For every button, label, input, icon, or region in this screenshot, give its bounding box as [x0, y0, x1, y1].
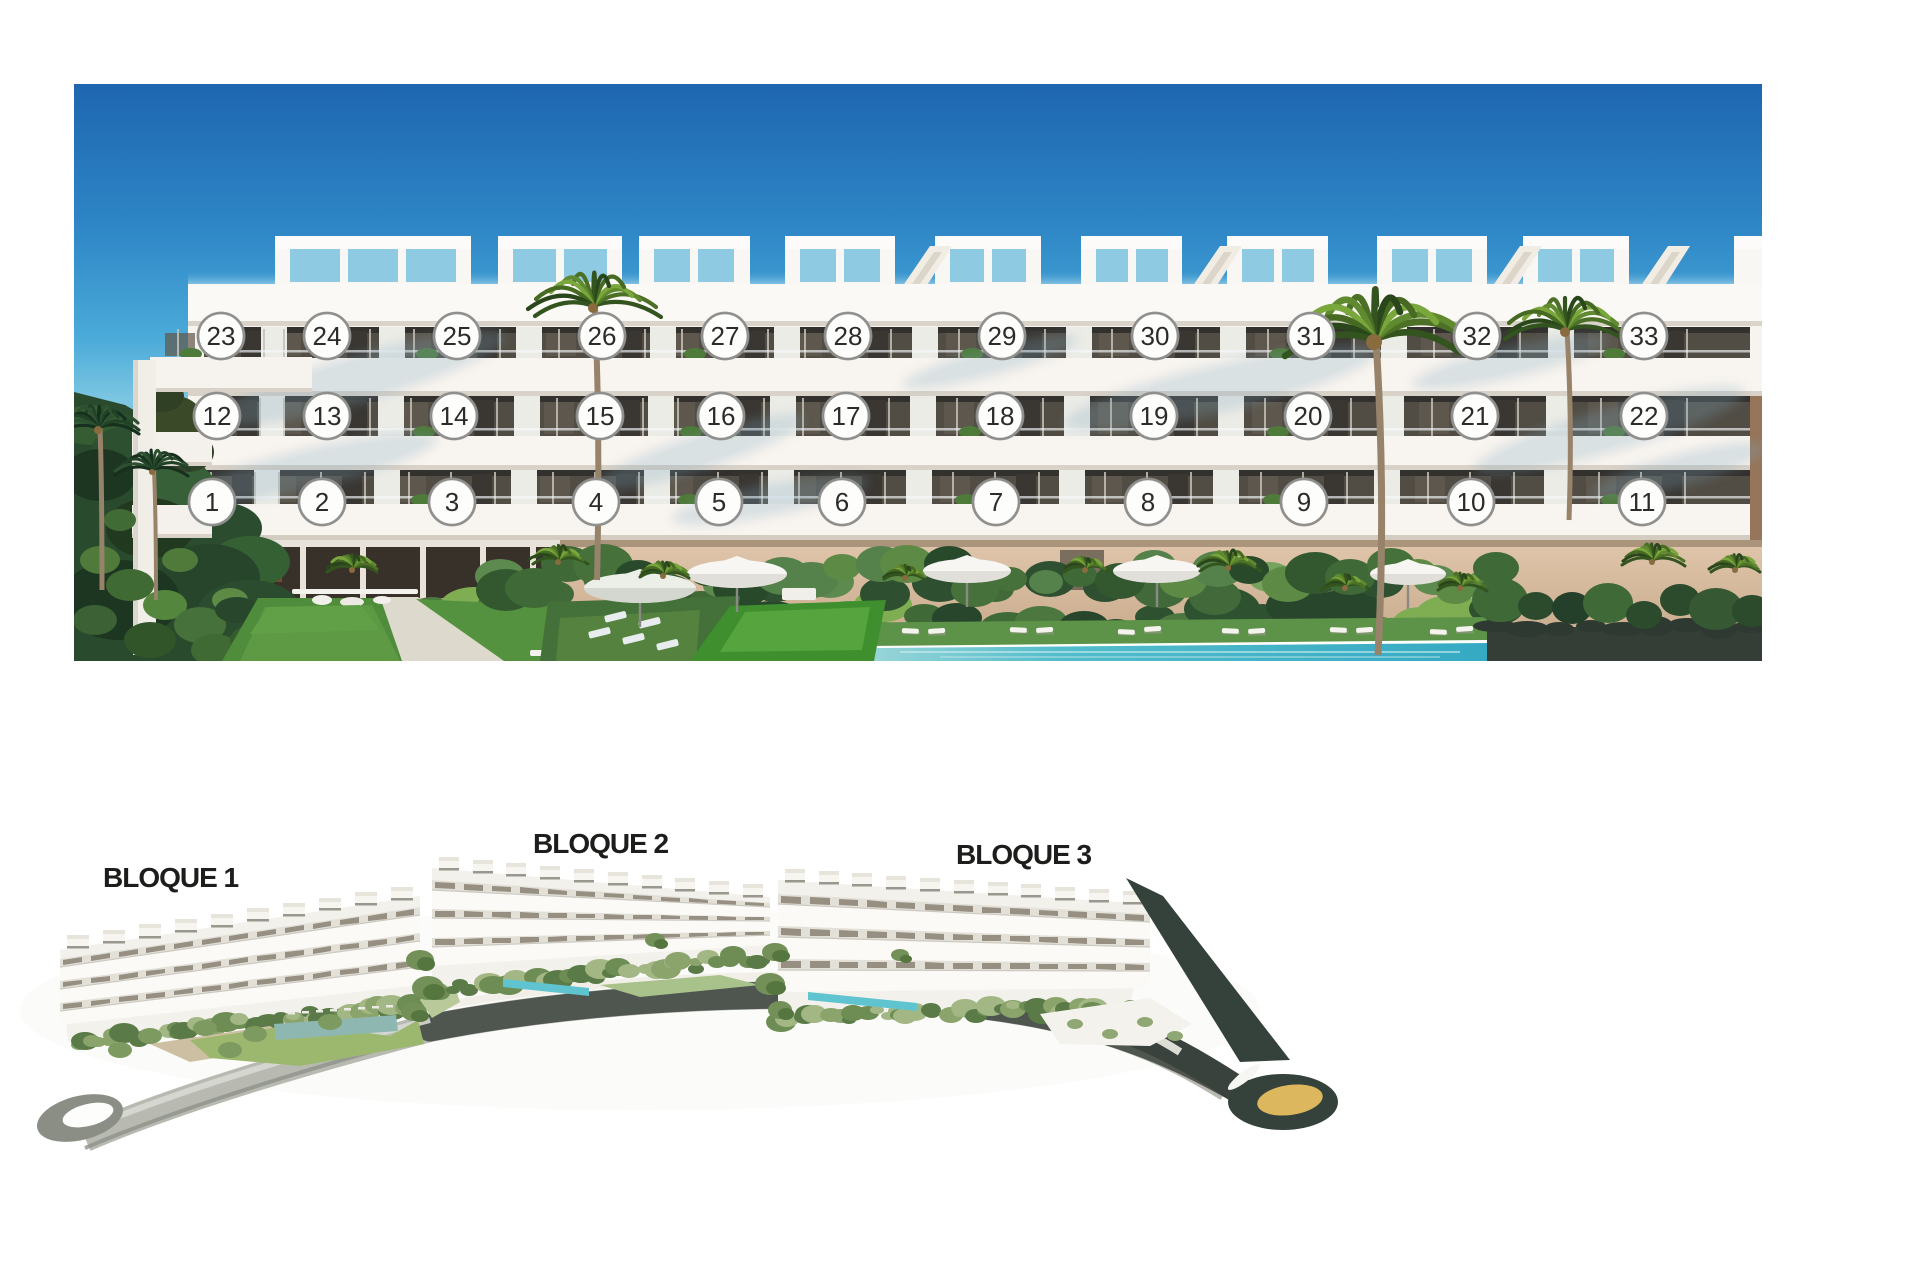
- svg-text:17: 17: [832, 401, 861, 431]
- svg-text:2: 2: [315, 487, 329, 517]
- svg-text:27: 27: [711, 321, 740, 351]
- svg-text:10: 10: [1457, 487, 1486, 517]
- svg-text:18: 18: [986, 401, 1015, 431]
- svg-text:28: 28: [834, 321, 863, 351]
- svg-text:7: 7: [989, 487, 1003, 517]
- svg-text:25: 25: [443, 321, 472, 351]
- svg-text:BLOQUE 3: BLOQUE 3: [956, 839, 1092, 870]
- svg-text:21: 21: [1461, 401, 1490, 431]
- svg-text:16: 16: [707, 401, 736, 431]
- svg-text:9: 9: [1297, 487, 1311, 517]
- svg-text:32: 32: [1463, 321, 1492, 351]
- svg-text:29: 29: [988, 321, 1017, 351]
- svg-text:3: 3: [445, 487, 459, 517]
- svg-text:22: 22: [1630, 401, 1659, 431]
- svg-text:24: 24: [313, 321, 342, 351]
- svg-text:23: 23: [207, 321, 236, 351]
- svg-text:20: 20: [1294, 401, 1323, 431]
- svg-text:12: 12: [203, 401, 232, 431]
- svg-text:13: 13: [313, 401, 342, 431]
- svg-text:33: 33: [1630, 321, 1659, 351]
- svg-text:19: 19: [1140, 401, 1169, 431]
- svg-text:8: 8: [1141, 487, 1155, 517]
- svg-text:14: 14: [440, 401, 469, 431]
- svg-text:15: 15: [586, 401, 615, 431]
- svg-text:6: 6: [835, 487, 849, 517]
- svg-text:BLOQUE 1: BLOQUE 1: [103, 862, 239, 893]
- svg-text:11: 11: [1629, 487, 1656, 517]
- svg-text:31: 31: [1297, 321, 1326, 351]
- svg-text:30: 30: [1141, 321, 1170, 351]
- svg-text:26: 26: [588, 321, 617, 351]
- svg-text:5: 5: [712, 487, 726, 517]
- svg-text:BLOQUE 2: BLOQUE 2: [533, 828, 669, 859]
- svg-text:1: 1: [205, 487, 219, 517]
- svg-text:4: 4: [589, 487, 603, 517]
